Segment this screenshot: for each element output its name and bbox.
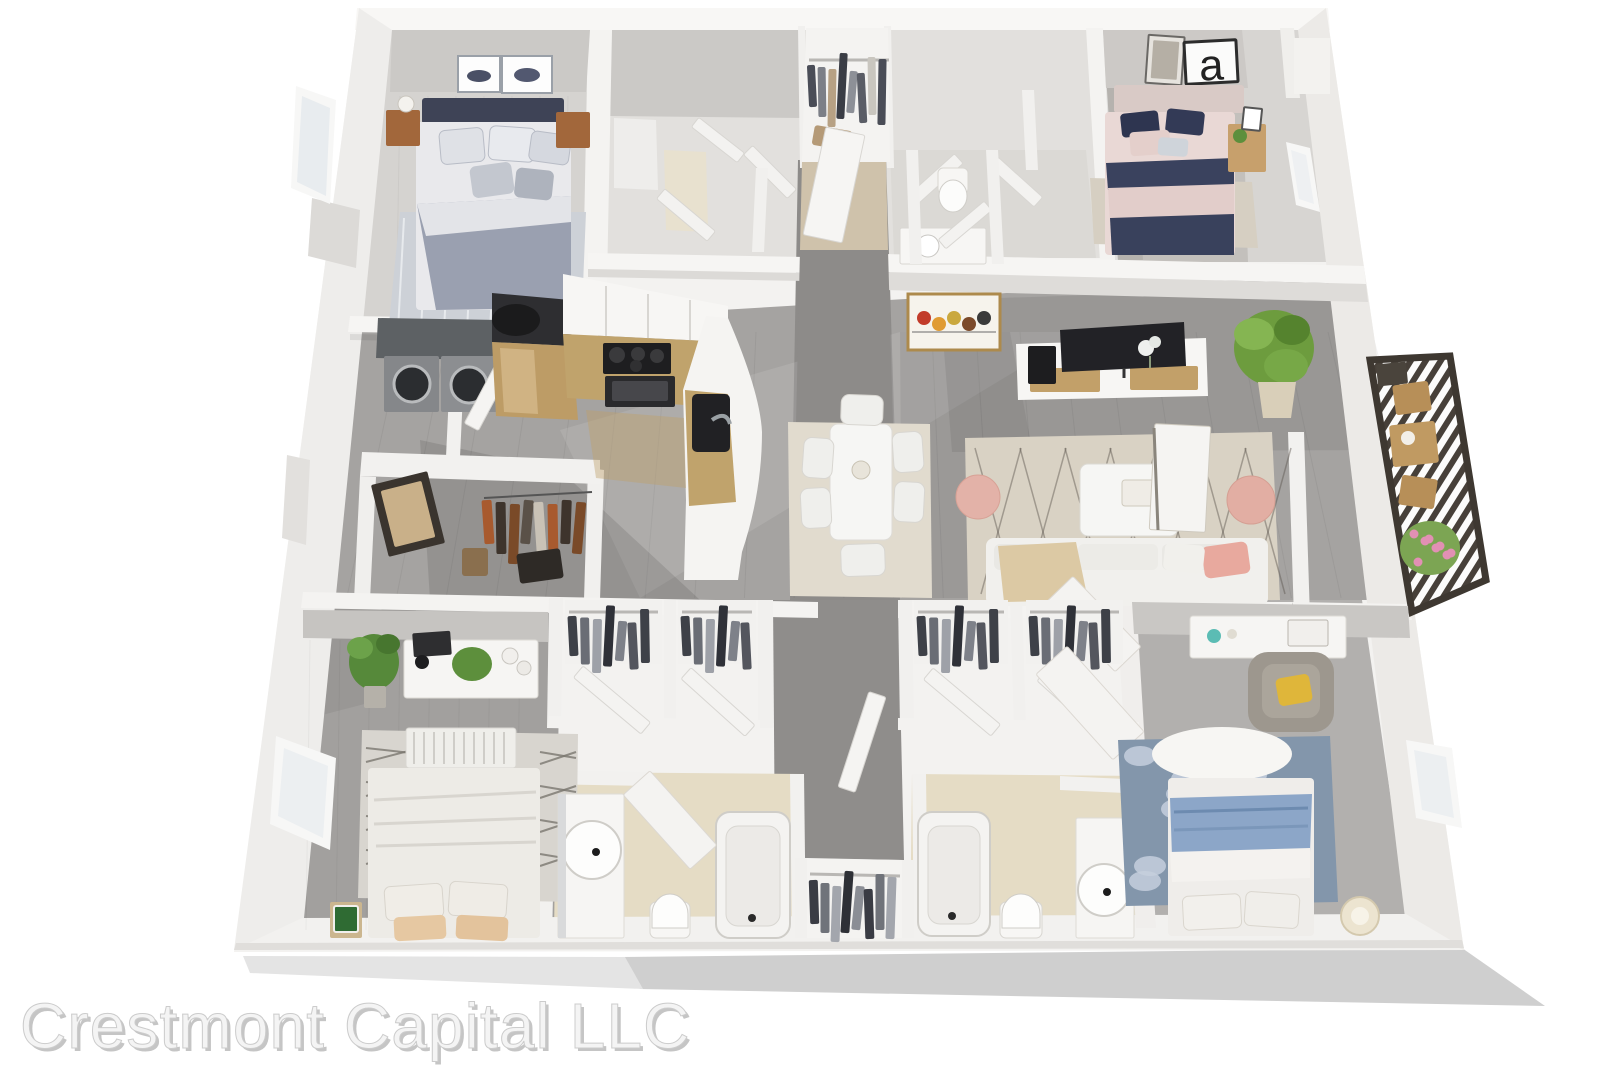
svg-text:Crestmont Capital LLC: Crestmont Capital LLC [20, 990, 690, 1062]
svg-text:a: a [1198, 40, 1226, 90]
